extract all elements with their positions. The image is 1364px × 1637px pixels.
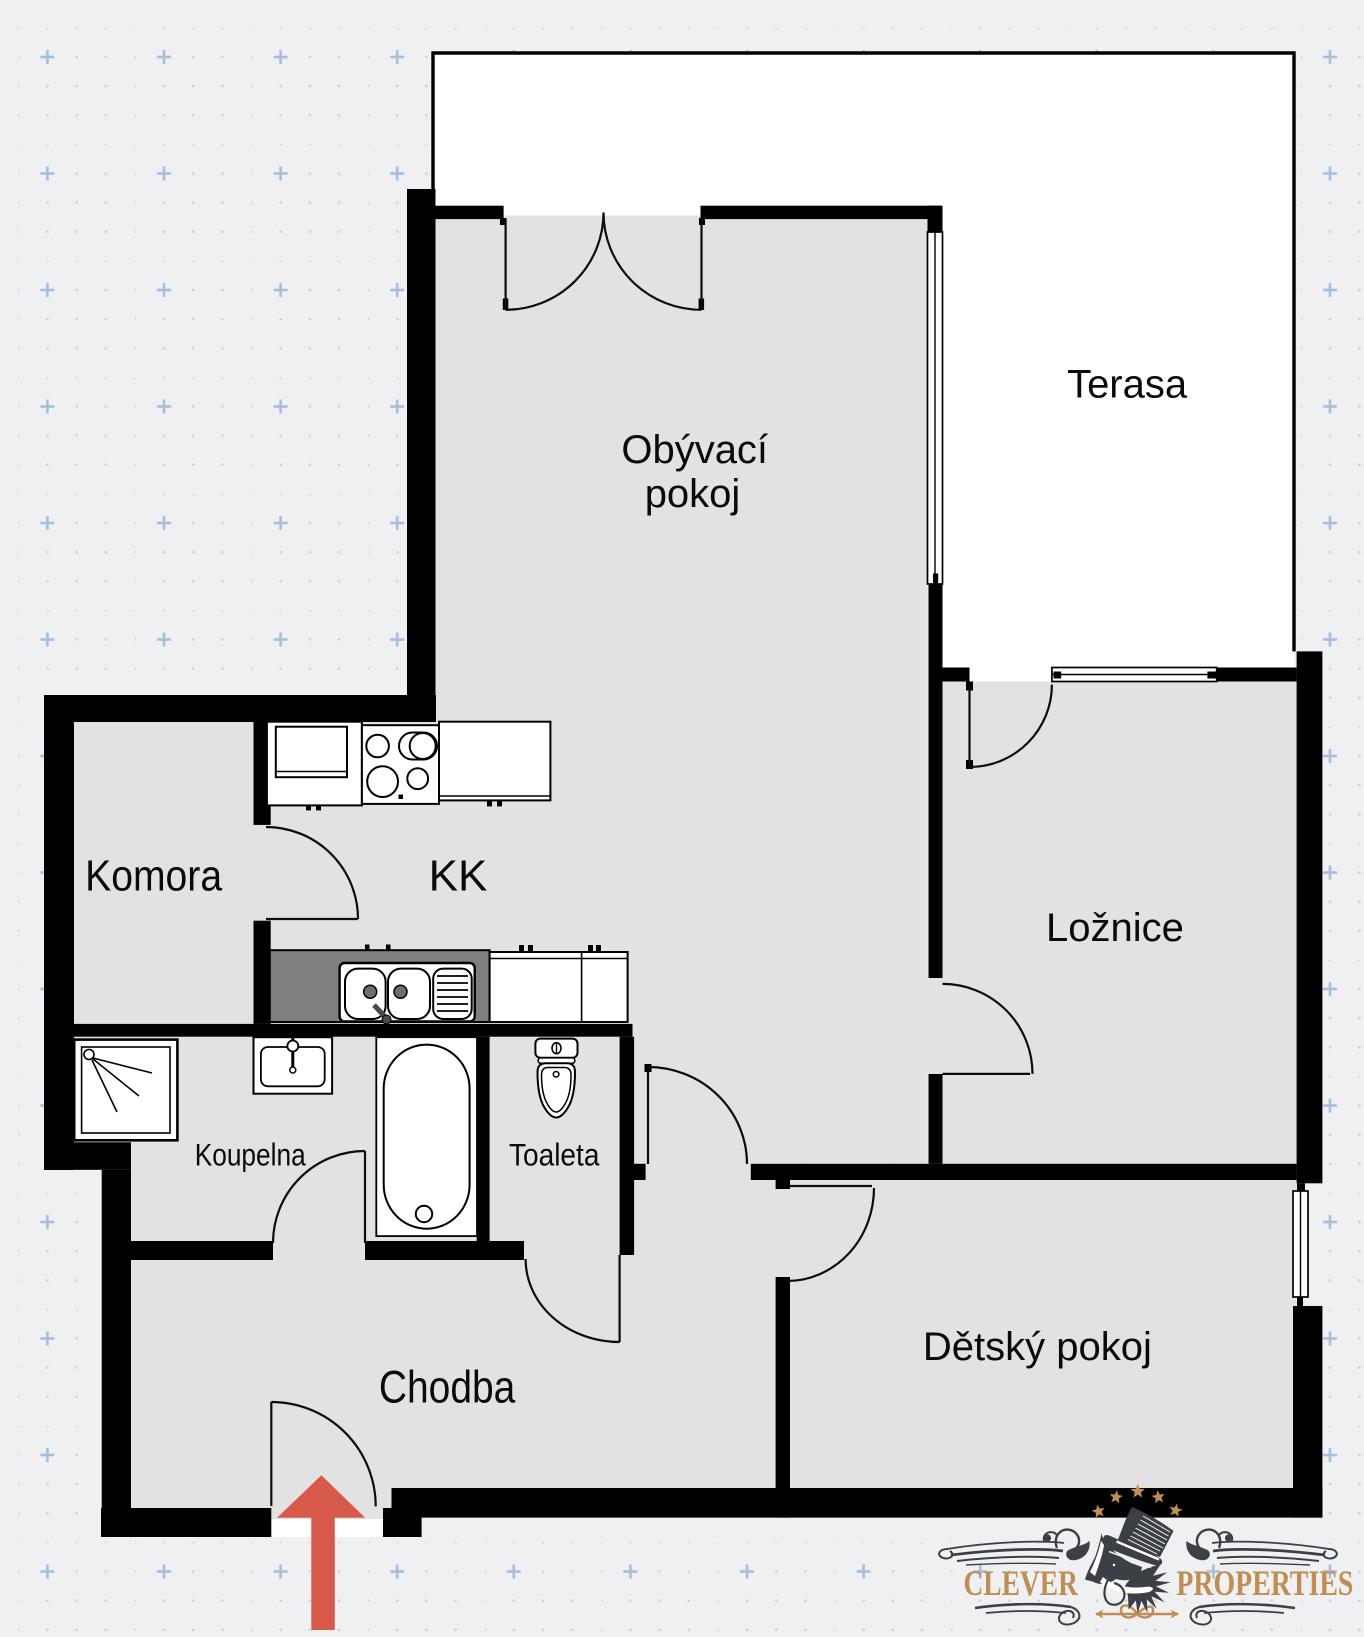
svg-text:Koupelna: Koupelna — [195, 1136, 306, 1172]
svg-text:Komora: Komora — [85, 852, 222, 901]
svg-text:Chodba: Chodba — [379, 1362, 516, 1413]
svg-text:CLEVER: CLEVER — [963, 1563, 1078, 1603]
svg-text:Toaleta: Toaleta — [509, 1136, 600, 1172]
svg-text:PROPERTIES: PROPERTIES — [1176, 1563, 1353, 1603]
svg-text:Ložnice: Ložnice — [1046, 906, 1184, 950]
svg-text:Dětský pokoj: Dětský pokoj — [923, 1325, 1152, 1369]
svg-text:pokoj: pokoj — [645, 472, 741, 516]
svg-text:Terasa: Terasa — [1067, 363, 1188, 407]
svg-text:KK: KK — [429, 852, 488, 901]
svg-text:Obývací: Obývací — [621, 428, 768, 472]
